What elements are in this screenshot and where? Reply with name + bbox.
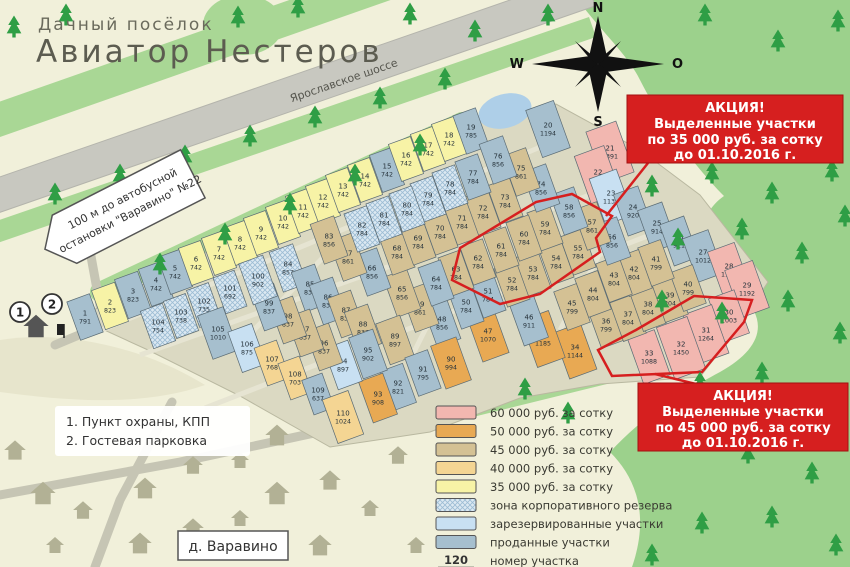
plot-area: 804 xyxy=(628,275,640,282)
plot-area: 856 xyxy=(535,190,547,197)
plot-area: 784 xyxy=(401,211,413,218)
plot-area: 784 xyxy=(467,179,479,186)
legend-label: проданные участки xyxy=(490,536,610,550)
plot-area: 1024 xyxy=(335,419,351,426)
plot-number: 110 xyxy=(336,410,349,418)
legend-label: 45 000 руб. за сотку xyxy=(490,443,613,457)
plot-area: 823 xyxy=(127,297,139,304)
plot-area: 742 xyxy=(213,255,225,262)
plot-area: 637 xyxy=(312,396,324,403)
plot-number: 46 xyxy=(525,314,534,322)
legend-swatch xyxy=(436,480,476,493)
plot-area: 784 xyxy=(460,308,472,315)
entrance-marker-2: 2 xyxy=(48,298,56,312)
plot-number: 37 xyxy=(624,311,633,319)
plot-number: 64 xyxy=(432,276,441,284)
legend-label: зарезервированные участки xyxy=(490,517,663,531)
plot-area: 799 xyxy=(682,290,694,297)
plot-number: 2 xyxy=(108,299,112,307)
plot-number: 41 xyxy=(652,256,661,264)
village-label: д. Варавино xyxy=(188,539,277,555)
promo45-line2: Выделенные участки xyxy=(662,405,824,420)
plot-area: 791 xyxy=(79,319,91,326)
plot-area: 856 xyxy=(323,242,335,249)
compass-n: N xyxy=(593,1,604,16)
plot-area: 784 xyxy=(356,231,368,238)
plot-area: 742 xyxy=(297,213,309,220)
plot-area: 784 xyxy=(434,234,446,241)
plot-area: 799 xyxy=(600,327,612,334)
plot-number: 55 xyxy=(574,245,583,253)
plot-area: 920 xyxy=(627,213,639,220)
plot-area: 856 xyxy=(606,243,618,250)
plot-area: 784 xyxy=(391,254,403,261)
plot-number: 58 xyxy=(565,204,574,212)
plot-number: 77 xyxy=(469,170,478,178)
legend-label: 60 000 руб. за сотку xyxy=(490,406,613,420)
plot-number: 108 xyxy=(288,371,301,379)
plot-number: 42 xyxy=(630,266,639,274)
plot-number: 102 xyxy=(197,298,210,306)
promo35-line2: Выделенные участки xyxy=(654,117,816,132)
plot-number: 107 xyxy=(265,356,278,364)
plot-area: 784 xyxy=(477,214,489,221)
plot-number: 62 xyxy=(474,255,483,263)
plot-number: 6 xyxy=(194,256,199,264)
plot-area: 837 xyxy=(263,309,275,316)
plot-number: 57 xyxy=(588,219,597,227)
plot-area: 784 xyxy=(495,252,507,259)
plot-number: 84 xyxy=(284,261,293,269)
legend-item-o: 50 000 руб. за сотку xyxy=(436,425,613,439)
plot-number: 82 xyxy=(358,222,367,230)
plot-area: 742 xyxy=(190,265,202,272)
plot-number: 38 xyxy=(644,301,653,309)
compass-s: S xyxy=(593,115,602,130)
plot-area: 795 xyxy=(417,375,429,382)
plot-area: 768 xyxy=(266,365,278,372)
plot-number: 12 xyxy=(319,194,328,202)
plot-area: 856 xyxy=(436,325,448,332)
plot-number: 60 xyxy=(520,231,529,239)
plot-number: 72 xyxy=(479,205,488,213)
promo-box-45: АКЦИЯ! Выделенные участки по 45 000 руб.… xyxy=(638,383,848,451)
plot-number: 45 xyxy=(568,300,577,308)
plot-number: 5 xyxy=(173,265,177,273)
plot-area: 804 xyxy=(622,320,634,327)
plot-area: 1192 xyxy=(739,291,755,298)
plot-area: 784 xyxy=(412,244,424,251)
plot-number: 81 xyxy=(380,212,389,220)
plot-number: 104 xyxy=(151,319,165,327)
note-line2: 2. Гостевая парковка xyxy=(66,433,207,448)
plot-area: 742 xyxy=(422,151,434,158)
plot-number: 59 xyxy=(541,221,550,229)
plot-area: 742 xyxy=(169,274,181,281)
legend-swatch xyxy=(436,425,476,438)
legend-swatch xyxy=(436,499,476,512)
plot-number: 99 xyxy=(265,300,274,308)
title-line1: Дачный посёлок xyxy=(38,15,214,35)
plot-number: 105 xyxy=(211,326,224,334)
plot-number: 21 xyxy=(606,145,615,153)
plot-number: 1 xyxy=(83,310,87,318)
plot-number: 44 xyxy=(589,287,598,295)
note-line1: 1. Пункт охраны, КПП xyxy=(66,414,210,429)
promo45-line4: до 01.10.2016 г. xyxy=(682,436,804,451)
legend-swatch xyxy=(436,462,476,475)
plot-number: 18 xyxy=(445,132,454,140)
plot-number: 13 xyxy=(339,183,348,191)
plot-number: 92 xyxy=(394,380,403,388)
plot-number: 90 xyxy=(447,356,456,364)
plot-number: 109 xyxy=(311,387,324,395)
plot-area: 784 xyxy=(430,285,442,292)
plot-number: 4 xyxy=(154,277,159,285)
plot-number: 101 xyxy=(223,285,236,293)
plot-number: 100 xyxy=(251,273,264,281)
legend-item-p: 60 000 руб. за сотку xyxy=(436,406,613,420)
plot-area: 1010 xyxy=(210,335,226,342)
plot-area: 856 xyxy=(366,274,378,281)
gate-icon xyxy=(57,324,64,335)
plot-area: 742 xyxy=(359,182,371,189)
plot-area: 742 xyxy=(317,203,329,210)
plot-area: 784 xyxy=(378,221,390,228)
plot-area: 754 xyxy=(152,328,164,335)
plot-area: 1012 xyxy=(695,258,711,265)
plot-number: 103 xyxy=(174,309,187,317)
promo-box-35: АКЦИЯ! Выделенные участки по 35 000 руб.… xyxy=(627,95,843,163)
plot-area: 742 xyxy=(277,224,289,231)
plot-area: 799 xyxy=(566,309,578,316)
plot-area: 994 xyxy=(445,365,457,372)
plot-number: 40 xyxy=(684,281,693,289)
plot-area: 911 xyxy=(523,323,535,330)
title-line2: Авиатор Нестеров xyxy=(36,34,383,70)
plot-area: 742 xyxy=(381,172,393,179)
plot-number: 68 xyxy=(393,245,402,253)
plot-area: 742 xyxy=(400,161,412,168)
plot-area: 742 xyxy=(255,235,267,242)
plot-area: 861 xyxy=(586,228,598,235)
plot-number: 106 xyxy=(240,341,254,349)
settlement-map: Ярославское шоссе 1791282338234742574267… xyxy=(0,0,850,567)
plot-area: 1088 xyxy=(641,359,657,366)
plot-area: 742 xyxy=(337,192,349,199)
plot-number: 3 xyxy=(131,288,135,296)
plot-number: 10 xyxy=(279,215,288,223)
compass-w: W xyxy=(510,57,524,72)
plot-number: 76 xyxy=(494,153,503,161)
plot-area: 902 xyxy=(362,356,374,363)
legend-item-y: 35 000 руб. за сотку xyxy=(436,480,613,494)
plot-area: 784 xyxy=(572,254,584,261)
plot-area: 784 xyxy=(444,190,456,197)
plot-number: 32 xyxy=(677,341,686,349)
promo35-line4: до 01.10.2016 г. xyxy=(674,148,796,163)
plot-number: 19 xyxy=(467,124,476,132)
legend-item-z: зона корпоративного резерва xyxy=(436,499,672,513)
plot-area: 784 xyxy=(506,286,518,293)
plot-area: 804 xyxy=(642,310,654,317)
plot-number: 7 xyxy=(217,246,221,254)
plot-number: 48 xyxy=(438,316,447,324)
legend-label: 50 000 руб. за сотку xyxy=(490,425,613,439)
legend-item-s: проданные участки xyxy=(436,536,610,550)
plot-number: 9 xyxy=(259,226,263,234)
plot-area: 703 xyxy=(289,380,301,387)
plot-number: 24 xyxy=(629,204,638,212)
legend-label: 35 000 руб. за сотку xyxy=(490,480,613,494)
map-svg: Ярославское шоссе 1791282338234742574267… xyxy=(0,0,850,567)
legend-item-r: зарезервированные участки xyxy=(436,517,663,531)
plot-area: 1194 xyxy=(540,131,556,138)
plot-area: 742 xyxy=(443,141,455,148)
plot-number: 78 xyxy=(446,181,455,189)
plot-number: 36 xyxy=(602,318,611,326)
plot-area: 823 xyxy=(104,308,116,315)
plot-number: 47 xyxy=(484,328,493,336)
entrance-marker-1: 1 xyxy=(16,306,24,320)
plot-area: 804 xyxy=(608,281,620,288)
plot-number: 16 xyxy=(402,152,411,160)
plot-number: 69 xyxy=(414,235,423,243)
plot-area: 738 xyxy=(175,318,187,325)
plot-number: 11 xyxy=(299,204,308,212)
plot-number: 33 xyxy=(645,350,654,358)
promo35-line3: по 35 000 руб. за сотку xyxy=(647,133,823,148)
plot-number: 93 xyxy=(374,391,383,399)
plot-number: 95 xyxy=(364,347,373,355)
plot-number: 65 xyxy=(398,286,407,294)
legend-swatch xyxy=(436,536,476,549)
plot-area: 784 xyxy=(456,224,468,231)
legend-label: 40 000 руб. за сотку xyxy=(490,462,613,476)
plot-area: 742 xyxy=(150,286,162,293)
plot-number: 79 xyxy=(424,192,433,200)
plot-area: 1264 xyxy=(698,336,714,343)
plot-number: 73 xyxy=(501,194,510,202)
plot-area: 856 xyxy=(492,162,504,169)
legend-item-f: 40 000 руб. за сотку xyxy=(436,462,613,476)
plot-area: 742 xyxy=(234,245,246,252)
plot-number: 34 xyxy=(571,344,580,352)
plot-area: 785 xyxy=(465,133,477,140)
plot-area: 784 xyxy=(499,203,511,210)
plot-area: 784 xyxy=(539,230,551,237)
plot-area: 1144 xyxy=(567,353,583,360)
plot-number: 14 xyxy=(361,173,370,181)
plot-number: 70 xyxy=(436,225,445,233)
legend-key-number: 120 xyxy=(444,553,468,567)
plot-number: 83 xyxy=(325,233,334,241)
plot-area: 1070 xyxy=(480,337,496,344)
promo35-line1: АКЦИЯ! xyxy=(705,101,765,116)
plot-area: 1450 xyxy=(673,350,689,357)
plot-area: 784 xyxy=(550,264,562,271)
plot-number: 71 xyxy=(458,215,467,223)
plot-number: 31 xyxy=(702,327,711,335)
plot-number: 61 xyxy=(497,243,506,251)
plot-number: 51 xyxy=(484,288,493,296)
plot-area: 784 xyxy=(518,240,530,247)
plot-number: 20 xyxy=(544,122,553,130)
plot-number: 91 xyxy=(419,366,428,374)
plot-number: 8 xyxy=(238,236,242,244)
plot-number: 15 xyxy=(383,163,392,171)
plot-area: 861 xyxy=(342,259,354,266)
village-label-box: д. Варавино xyxy=(178,531,288,560)
plot-area: 908 xyxy=(372,400,384,407)
plot-number: 53 xyxy=(529,266,538,274)
plot-area: 856 xyxy=(563,213,575,220)
legend-item-t: 45 000 руб. за сотку xyxy=(436,443,613,457)
notes-box: 1. Пункт охраны, КПП 2. Гостевая парковк… xyxy=(55,406,250,456)
legend-key-number-label: номер участка xyxy=(490,554,579,567)
plot-number: 43 xyxy=(610,272,619,280)
plot-area: 784 xyxy=(527,275,539,282)
plot-area: 856 xyxy=(396,295,408,302)
plot-number: 88 xyxy=(359,321,368,329)
legend-swatch xyxy=(436,517,476,530)
plot-number: 66 xyxy=(368,265,377,273)
plot-number: 54 xyxy=(552,255,561,263)
plot-area: 875 xyxy=(241,350,253,357)
plot-number: 29 xyxy=(743,282,752,290)
plot-number: 50 xyxy=(462,299,471,307)
plot-area: 692 xyxy=(224,294,236,301)
plot-number: 52 xyxy=(508,277,517,285)
legend-label: зона корпоративного резерва xyxy=(490,499,672,513)
plot-area: 902 xyxy=(252,282,264,289)
plot-area: 799 xyxy=(650,265,662,272)
legend-swatch xyxy=(436,406,476,419)
plot-number: 75 xyxy=(517,165,526,173)
legend-swatch xyxy=(436,443,476,456)
plot-area: 897 xyxy=(337,367,349,374)
plot-number: 89 xyxy=(391,333,400,341)
plot-number: 80 xyxy=(403,202,412,210)
plot-area: 821 xyxy=(392,389,404,396)
plot-area: 784 xyxy=(422,201,434,208)
compass-e: O xyxy=(672,57,683,72)
plot-area: 784 xyxy=(472,264,484,271)
plot-number: 27 xyxy=(699,249,708,257)
plot-area: 897 xyxy=(389,342,401,349)
promo45-line1: АКЦИЯ! xyxy=(713,389,773,404)
promo45-line3: по 45 000 руб. за сотку xyxy=(655,421,831,436)
plot-area: 804 xyxy=(587,296,599,303)
